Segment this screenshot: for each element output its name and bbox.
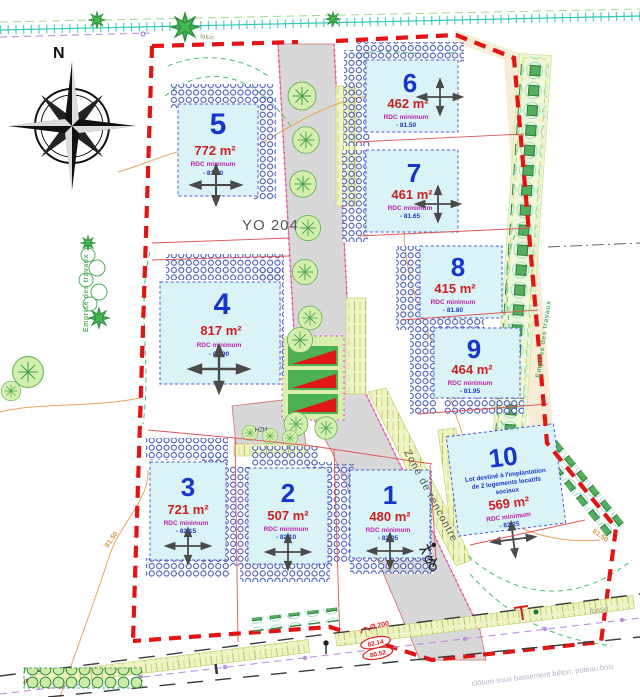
lot-10: 10 Lot destiné à l'implantation de 2 log… [446, 424, 569, 563]
lot-7: 7 461 m² RDC minimum - 81.65 [342, 150, 460, 242]
left-vegetation [1, 233, 113, 401]
subdivision-plan: 81.50 81.50 81.50 5 772 m² RDC minimum -… [0, 0, 640, 697]
lot-3: 3 721 m² RDC minimum - 82.15 [146, 438, 230, 578]
lot-rdc-value: - 81.65 [400, 213, 421, 220]
plan-canvas: 81.50 81.50 81.50 5 772 m² RDC minimum -… [0, 0, 640, 697]
parcel-limit-line [548, 243, 640, 247]
lot-area: 721 m² [167, 502, 209, 517]
lot-area: 464 m² [451, 362, 493, 377]
lot-4: 4 817 m² RDC minimum - 81.90 [160, 254, 284, 392]
lot-2: 2 507 m² RDC minimum - 82.10 [228, 446, 332, 582]
lot-6: 6 462 m² RDC minimum - 81.50 [344, 42, 464, 146]
lot-rdc-value: - 81.50 [396, 122, 417, 129]
tree-icon [323, 9, 343, 29]
lot-rdc-label: RDC minimum [366, 527, 411, 534]
bush-row [24, 668, 142, 688]
lot-area: 817 m² [200, 323, 242, 338]
contour-label: 81.50 [104, 531, 120, 549]
lot-9: 9 464 m² RDC minimum - 81.95 [410, 328, 524, 414]
hzh-label: HZH [255, 427, 268, 434]
green-node [534, 610, 539, 615]
lot-number: 4 [214, 288, 231, 321]
pedestrian-mark [324, 641, 328, 654]
lot-number: 2 [281, 478, 295, 508]
compass-rose: N [8, 45, 136, 190]
tree-icon [166, 8, 204, 46]
lot-5: 5 772 m² RDC minimum - 81.60 [170, 84, 276, 205]
lot-8: 8 415 m² RDC minimum - 81.80 [396, 246, 502, 334]
talus-label: talus [200, 33, 215, 41]
lot-rdc-label: RDC minimum [448, 380, 493, 387]
parcel-ref-label: YO 204 [242, 217, 299, 234]
fence-note-label: clôture sous bassement béton, poteau boi… [471, 662, 614, 688]
lot-number: 6 [403, 68, 417, 98]
bottom-road: Ø 200 82.14 80.52 [0, 594, 640, 697]
lot-rdc-label: RDC minimum [431, 299, 476, 306]
compass-north-label: N [53, 45, 65, 62]
lot-area: 507 m² [267, 508, 309, 523]
lot-rdc-label: RDC minimum [264, 526, 309, 533]
top-hedge [0, 8, 640, 46]
lot-number: 1 [383, 480, 397, 510]
lot-rdc-label: RDC minimum [164, 520, 209, 527]
lot-rdc-value: - 81.95 [460, 388, 481, 395]
lot-area: 415 m² [434, 281, 476, 296]
lot-rdc-value: - 81.80 [443, 307, 464, 314]
lot-number: 7 [407, 158, 421, 188]
lot-rdc-label: RDC minimum [191, 161, 236, 168]
tree-icon [1, 381, 21, 401]
lot-number: 10 [487, 440, 519, 473]
lot-number: 9 [467, 334, 481, 364]
lot-area: 461 m² [391, 187, 433, 202]
tree-icon [78, 233, 98, 253]
tree-icon [13, 357, 44, 388]
lot-rdc-label: RDC minimum [384, 114, 429, 121]
lot-number: 8 [451, 252, 465, 282]
lot-number: 5 [210, 108, 227, 141]
lot-rdc-label: RDC minimum [388, 205, 433, 212]
lot-number: 3 [181, 472, 195, 502]
lot-area: 772 m² [194, 143, 236, 158]
lot-area: 480 m² [369, 509, 411, 524]
emprise-travaux-label: Emprise des travaux [83, 254, 90, 332]
